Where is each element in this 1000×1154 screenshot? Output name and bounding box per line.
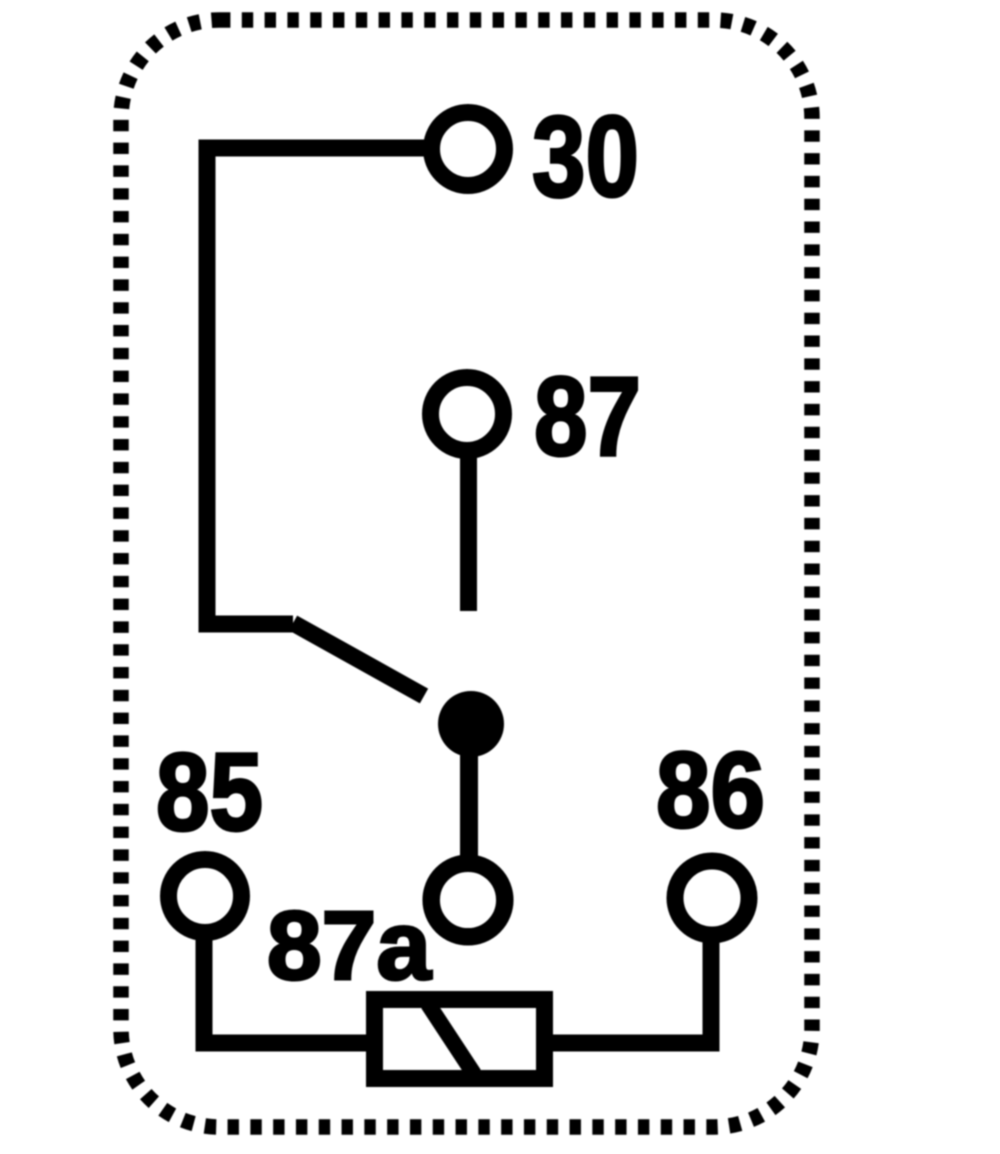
svg-text:86: 86	[656, 729, 765, 850]
svg-text:30: 30	[532, 93, 639, 221]
svg-text:85: 85	[156, 731, 263, 854]
svg-text:87a: 87a	[267, 891, 432, 1000]
svg-text:87: 87	[534, 354, 641, 479]
